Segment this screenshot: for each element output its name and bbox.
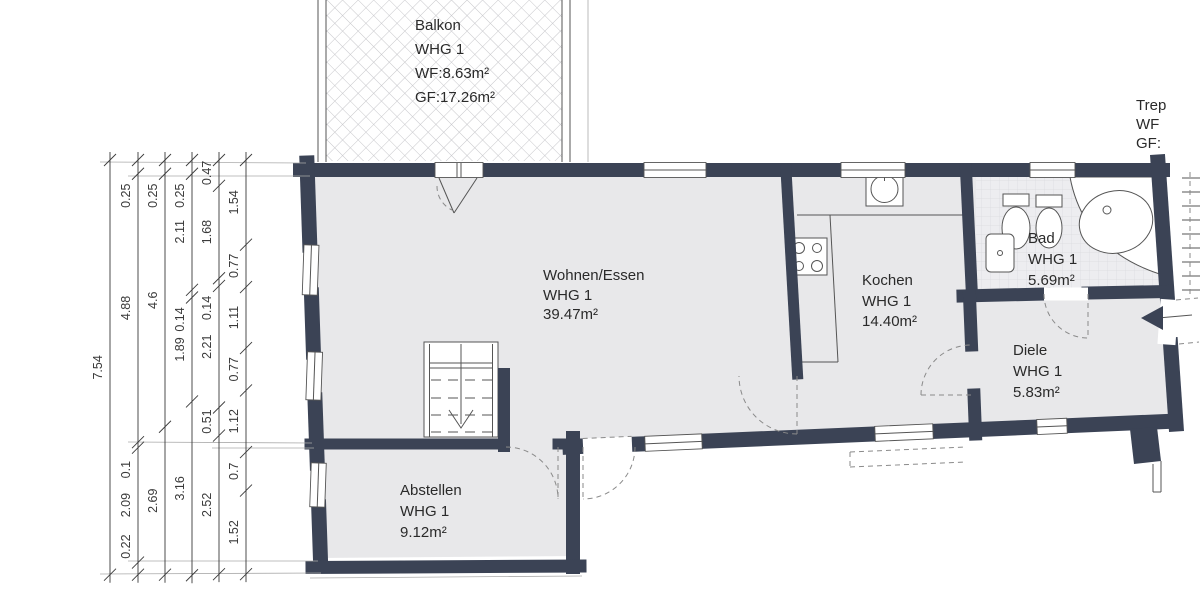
dimension-value: 0.14 [173,307,187,331]
balcony-label-unit: WHG 1 [415,41,464,58]
dimension-value: 0.14 [200,296,214,320]
window-top-1 [644,163,706,178]
room-label-abstellen-name: Abstellen [400,482,462,499]
window-abstellen [310,463,327,507]
dimension-value: 0.7 [227,463,241,480]
room-label-bad-area: 5.69m² [1028,272,1075,289]
entry-door-dashes [1176,298,1199,344]
dimension-value: 1.12 [227,409,241,433]
room-label-abstellen-area: 9.12m² [400,524,447,541]
balcony-label-name: Balkon [415,17,461,34]
floor-plan-page: 7.540.254.880.12.090.220.254.62.690.252.… [0,0,1200,600]
staircase [424,342,498,437]
stairwell-stairs [1182,172,1200,296]
window-bottom-1 [645,434,703,451]
bath-door-opening [1044,288,1088,301]
dimension-value: 0.22 [119,534,133,558]
door-terrace [583,447,635,499]
dimension-value: 0.51 [200,409,214,433]
dimension-value: 1.54 [227,190,241,214]
room-label-diele-unit: WHG 1 [1013,363,1062,380]
dimension-value: 0.77 [227,254,241,278]
dimension-value: 0.1 [119,461,133,478]
room-label-bad-unit: WHG 1 [1028,251,1077,268]
balcony-label-gf: GF:17.26m² [415,89,495,106]
window-bottom-2 [875,424,934,442]
floor-plan-drawing: 7.540.254.880.12.090.220.254.62.690.252.… [0,0,1200,600]
room-label-abstellen-unit: WHG 1 [400,503,449,520]
dimension-value: 1.89 [173,337,187,361]
dimension-value: 0.77 [227,357,241,381]
room-label-kochen-area: 14.40m² [862,313,917,330]
window-bathroom [1030,163,1075,178]
terrace-edge-dashes [850,447,966,467]
balcony-label-wf: WF:8.63m² [415,65,489,82]
room-label-diele-area: 5.83m² [1013,384,1060,401]
dimension-value: 1.68 [200,220,214,244]
room-label-diele-name: Diele [1013,342,1047,359]
room-label-bad-name: Bad [1028,230,1055,247]
terrace-door-opening [583,436,633,454]
washbasin-icon [986,234,1014,272]
dimension-value: 4.88 [119,296,133,320]
room-label-wohnen-unit: WHG 1 [543,287,592,304]
dimension-value: 0.47 [200,161,214,185]
room-label-kochen-unit: WHG 1 [862,293,911,310]
room-label-wohnen-area: 39.47m² [543,306,598,323]
dimension-value: 0.25 [146,184,160,208]
dimension-value: 2.52 [200,493,214,517]
dimension-value: 2.21 [200,335,214,359]
dimension-value: 0.25 [119,184,133,208]
porch-wall [1130,427,1161,464]
balcony-door-opening [435,163,483,178]
dimension-value: 2.69 [146,489,160,513]
room-label-kochen-name: Kochen [862,272,913,289]
dimension-value: 1.11 [227,306,241,329]
dimension-value: 7.54 [91,355,105,379]
dimension-chains: 7.540.254.880.12.090.220.254.62.690.252.… [91,152,252,583]
stairwell-label-wf: WF [1136,116,1159,133]
window-top-kitchen [841,163,905,178]
room-label-wohnen-name: Wohnen/Essen [543,267,644,284]
dimension-value: 0.25 [173,184,187,208]
dimension-value: 3.16 [173,476,187,500]
window-left-1 [302,245,319,295]
window-left-2 [306,352,323,400]
stairwell-label-gf: GF: [1136,135,1161,152]
dimension-value: 2.09 [119,493,133,517]
dimension-value: 4.6 [146,292,160,309]
dimension-value: 2.11 [173,220,187,243]
stairwell-label-name: Trep [1136,97,1166,114]
window-diele [1037,418,1068,434]
dimension-value: 1.52 [227,520,241,544]
